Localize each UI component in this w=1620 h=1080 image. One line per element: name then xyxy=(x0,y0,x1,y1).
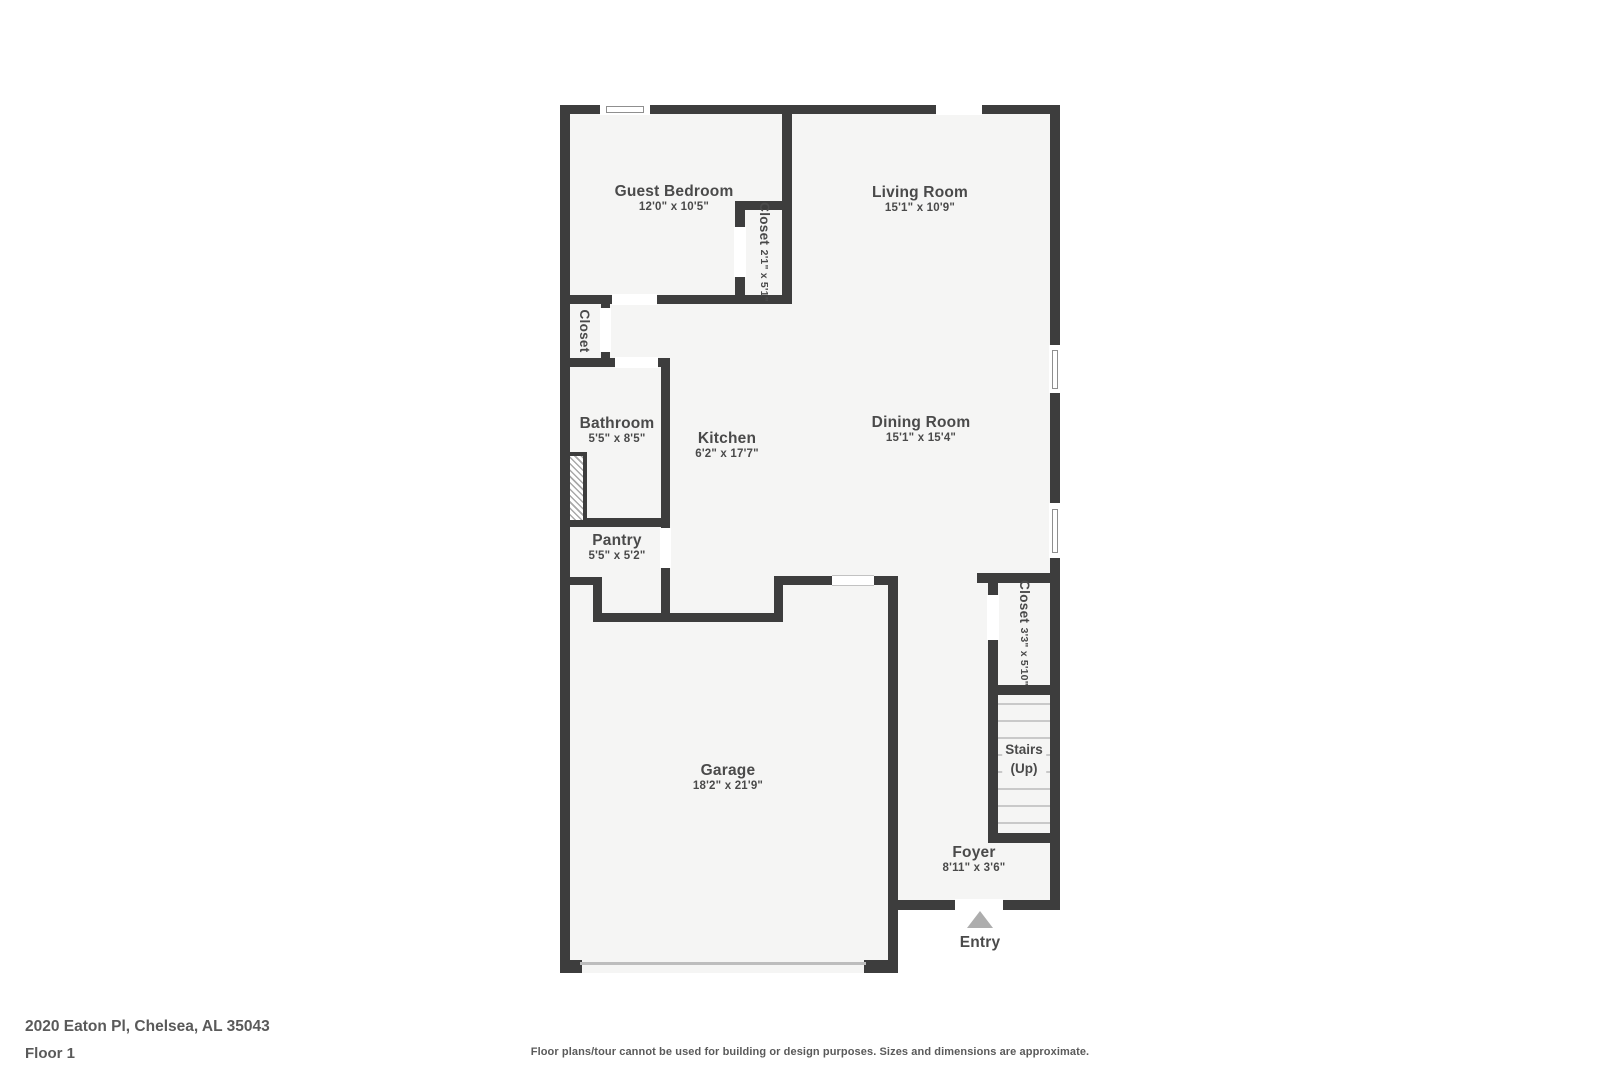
entry-arrow-icon xyxy=(967,911,993,928)
label-foyer-closet: Closet 3'3" x 5'10" xyxy=(1015,580,1033,686)
bedroom-closet-dims: 2'1" x 5'1" xyxy=(758,250,770,302)
stair-tread xyxy=(998,805,1050,807)
label-garage: Garage 18'2" x 21'9" xyxy=(693,762,763,792)
stair-tread xyxy=(998,822,1050,824)
living-room-name: Living Room xyxy=(872,184,968,202)
stair-tread xyxy=(998,788,1050,790)
label-stairs: Stairs (Up) xyxy=(1002,740,1046,778)
living-room-dims: 15'1" x 10'9" xyxy=(872,202,968,214)
label-living-room: Living Room 15'1" x 10'9" xyxy=(872,184,968,214)
disclaimer-text: Floor plans/tour cannot be used for buil… xyxy=(0,1046,1620,1058)
label-entry: Entry xyxy=(960,934,1001,952)
window-guest-bedroom-sash xyxy=(606,106,644,113)
label-pantry: Pantry 5'5" x 5'2" xyxy=(589,532,646,562)
kitchen-dims: 6'2" x 17'7" xyxy=(695,448,759,460)
wall-foyer-closet-bottom xyxy=(988,685,1060,695)
window-living-room-top xyxy=(936,104,982,115)
door-pantry xyxy=(660,528,671,568)
foyer-closet-name: Closet xyxy=(1017,580,1032,623)
wall-garage-right xyxy=(888,576,898,973)
guest-bedroom-name: Guest Bedroom xyxy=(615,183,734,201)
door-guest-bedroom xyxy=(612,294,657,305)
dining-room-dims: 15'1" x 15'4" xyxy=(872,432,971,444)
foyer-dims: 8'11" x 3'6" xyxy=(943,862,1006,874)
foyer-name: Foyer xyxy=(943,844,1006,862)
door-bathroom xyxy=(615,357,658,368)
door-hall-closet xyxy=(600,308,611,352)
window-living-room-right-sash xyxy=(1052,350,1058,389)
stairs-name: Stairs xyxy=(1005,740,1043,759)
label-guest-bedroom: Guest Bedroom 12'0" x 10'5" xyxy=(615,183,734,213)
label-hall-closet: Closet xyxy=(575,309,593,352)
garage-dims: 18'2" x 21'9" xyxy=(693,780,763,792)
bathroom-hatched-fixture xyxy=(566,452,587,524)
wall-stairs-bottom xyxy=(988,833,1060,843)
garage-door-line xyxy=(580,962,866,965)
foyer-closet-dims: 3'3" x 5'10" xyxy=(1018,628,1030,686)
label-bedroom-closet: Closet 2'1" x 5'1" xyxy=(755,202,773,302)
window-dining-room-right-sash xyxy=(1052,509,1058,553)
property-address: 2020 Eaton Pl, Chelsea, AL 35043 xyxy=(25,1018,270,1036)
wall-outer-left xyxy=(560,105,570,973)
guest-bedroom-dims: 12'0" x 10'5" xyxy=(615,201,734,213)
floorplan-footprint-main xyxy=(560,105,1060,910)
wall-garage-bottom-left-corner xyxy=(560,960,582,973)
dining-room-name: Dining Room xyxy=(872,414,971,432)
door-bedroom-closet xyxy=(734,227,746,277)
label-bathroom: Bathroom 5'5" x 8'5" xyxy=(580,415,655,445)
label-kitchen: Kitchen 6'2" x 17'7" xyxy=(695,430,759,460)
bathroom-dims: 5'5" x 8'5" xyxy=(580,433,655,445)
stairs-direction: (Up) xyxy=(1005,759,1043,778)
label-dining-room: Dining Room 15'1" x 15'4" xyxy=(872,414,971,444)
floorplan-page: Guest Bedroom 12'0" x 10'5" Living Room … xyxy=(0,0,1620,1080)
kitchen-name: Kitchen xyxy=(695,430,759,448)
wall-bathroom-pantry-right xyxy=(661,358,670,622)
wall-garage-bottom-right-corner xyxy=(864,960,898,973)
door-garage-to-hall xyxy=(832,575,874,586)
garage-name: Garage xyxy=(693,762,763,780)
wall-kitchen-bottom xyxy=(593,613,783,622)
pantry-name: Pantry xyxy=(589,532,646,550)
stair-tread xyxy=(998,737,1050,739)
hall-closet-name: Closet xyxy=(577,309,592,352)
stair-tread xyxy=(998,703,1050,705)
pantry-dims: 5'5" x 5'2" xyxy=(589,550,646,562)
door-foyer-closet xyxy=(987,595,999,640)
label-foyer: Foyer 8'11" x 3'6" xyxy=(943,844,1006,874)
bedroom-closet-name: Closet xyxy=(757,202,772,245)
door-entry xyxy=(955,899,1003,911)
stair-tread xyxy=(998,720,1050,722)
bathroom-name: Bathroom xyxy=(580,415,655,433)
